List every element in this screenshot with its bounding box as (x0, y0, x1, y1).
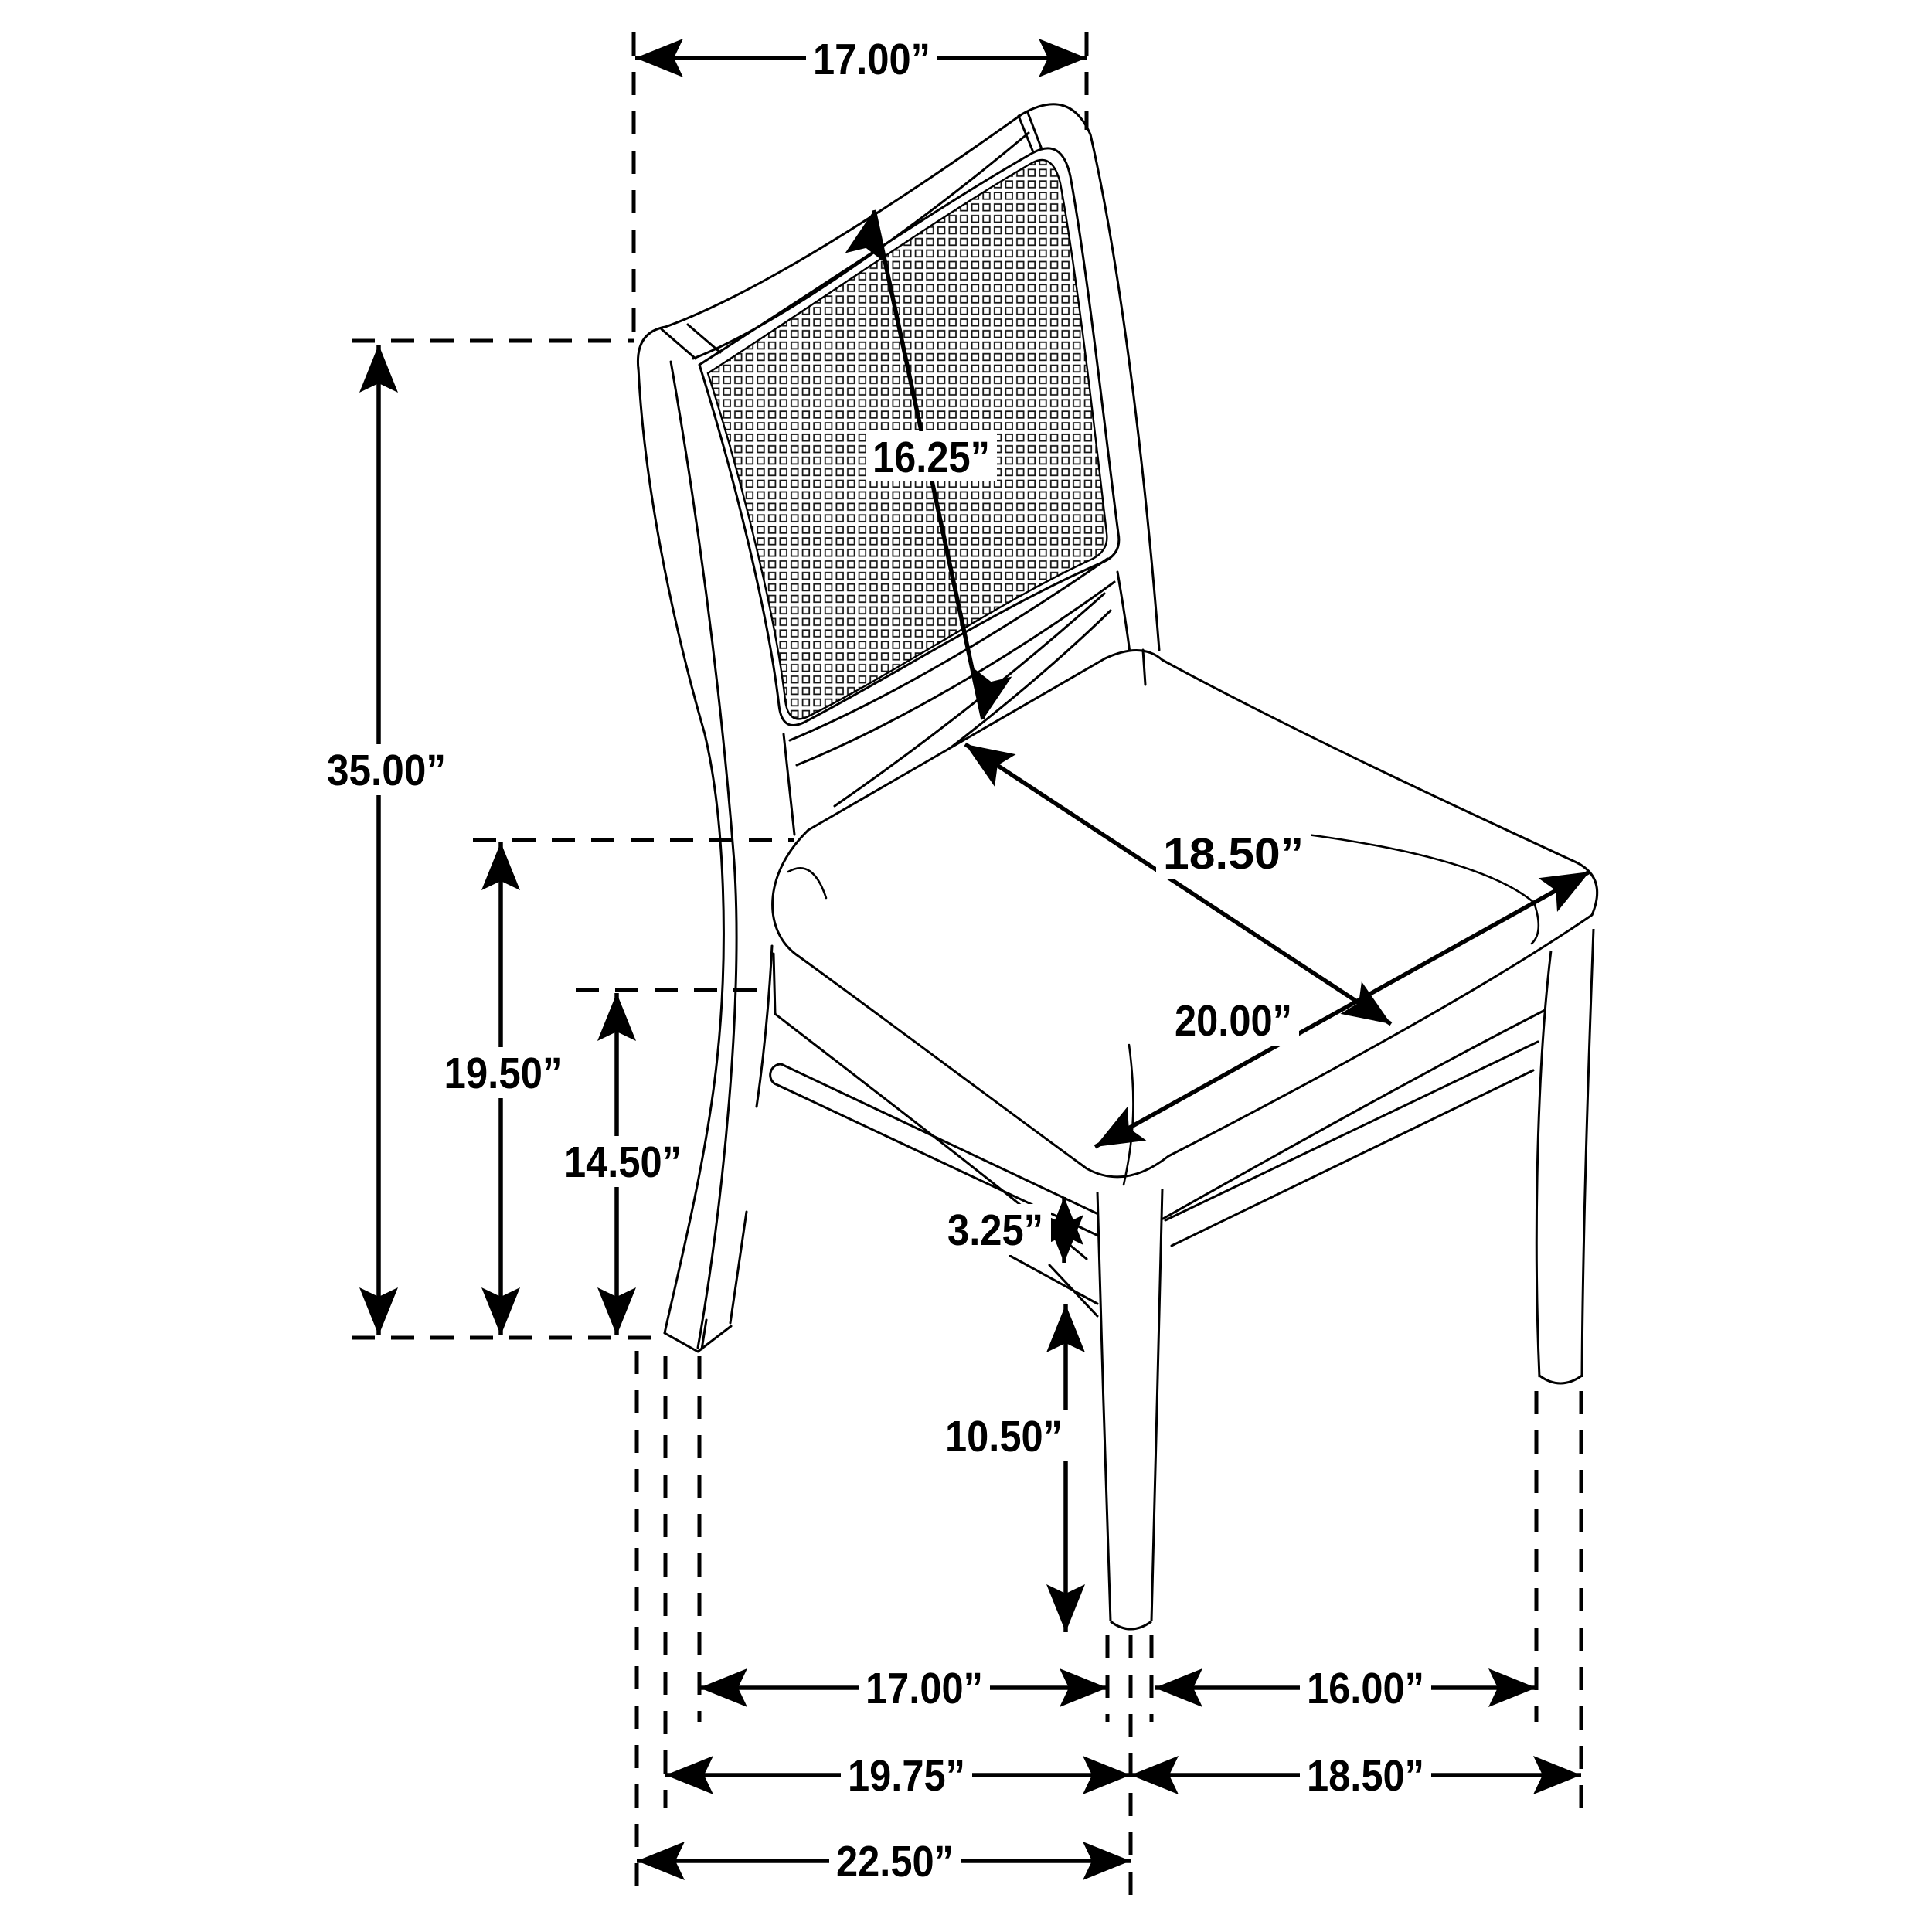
svg-text:10.50”: 10.50” (945, 1412, 1063, 1461)
svg-text:18.50”: 18.50” (1163, 829, 1304, 879)
svg-text:22.50”: 22.50” (836, 1837, 954, 1886)
svg-text:18.50”: 18.50” (1307, 1751, 1424, 1801)
svg-text:3.25”: 3.25” (947, 1206, 1043, 1255)
svg-text:35.00”: 35.00” (327, 746, 446, 795)
svg-text:17.00”: 17.00” (866, 1664, 983, 1713)
svg-text:14.50”: 14.50” (564, 1138, 682, 1187)
svg-text:17.00”: 17.00” (813, 35, 930, 84)
svg-text:19.75”: 19.75” (848, 1751, 965, 1801)
svg-text:16.25”: 16.25” (872, 433, 990, 482)
svg-text:19.50”: 19.50” (444, 1049, 563, 1098)
svg-text:20.00”: 20.00” (1175, 996, 1292, 1046)
svg-text:16.00”: 16.00” (1307, 1664, 1424, 1713)
